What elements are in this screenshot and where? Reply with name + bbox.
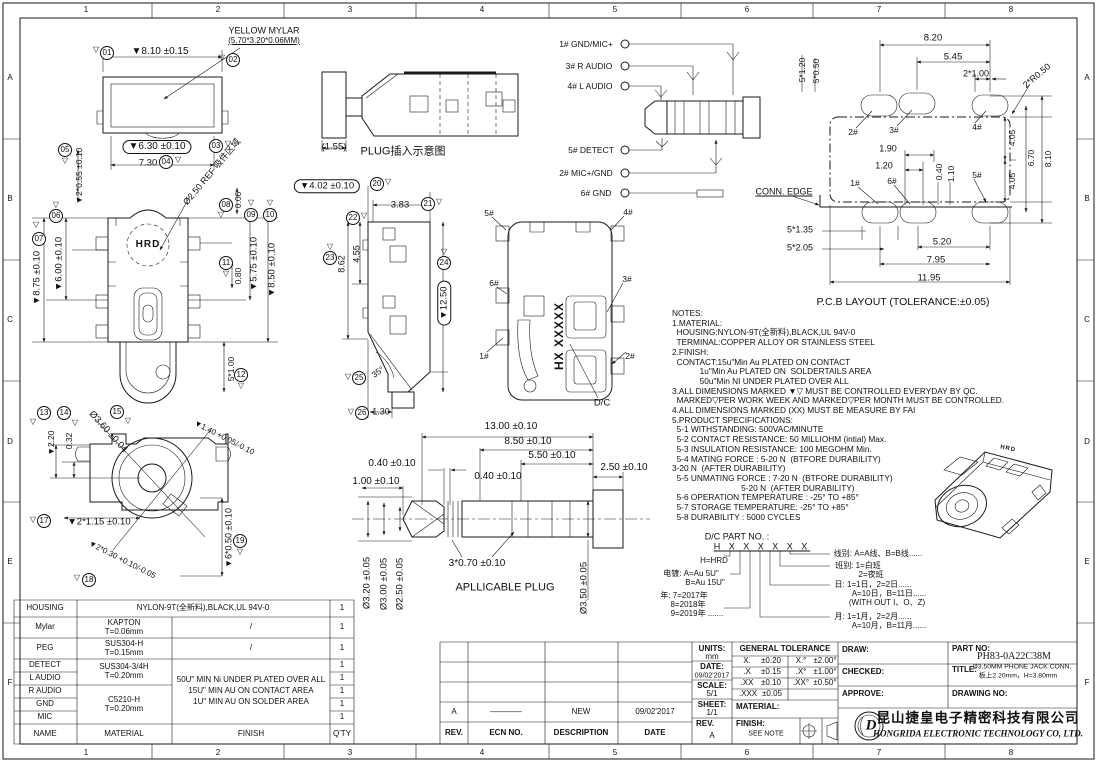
dim-label: ▼5.75 ±0.10 xyxy=(249,237,259,291)
dim-label: ▼8.50 ±0.10 xyxy=(267,243,277,297)
grid-ref: C xyxy=(7,316,13,324)
bom-header-material: MATERIAL xyxy=(104,730,143,738)
rev-entry-ecn: ———— xyxy=(490,708,522,716)
bom-header-finish: FINISH xyxy=(238,730,264,738)
part-number: PH83-0A22C38M xyxy=(977,652,1051,662)
tolerance-header: GENERAL TOLERANCE xyxy=(740,645,831,653)
bom-finish-line: 50U" MIN Ni UNDER PLATED OVER ALL xyxy=(177,676,326,684)
bom-name: Mylar xyxy=(35,623,55,631)
inspection-triangle-icon: ▽ xyxy=(218,211,224,219)
grid-ref: 5 xyxy=(613,6,617,14)
dim-label: 0.40 ±0.10 xyxy=(368,459,415,469)
pin-label: 5# DETECT xyxy=(568,146,614,155)
rev-entry-date: 09/02'2017 xyxy=(635,708,674,716)
bom-qty: 1 xyxy=(340,644,344,652)
company-name-en: HONGRIDA ELECTRONIC TECHNOLOGY CO, LTD. xyxy=(873,730,1083,739)
grid-ref: D xyxy=(1084,438,1090,446)
bom-name: PEG xyxy=(37,644,54,652)
balloon-number: 18 xyxy=(82,573,96,587)
inspection-triangle-icon: ▽ xyxy=(72,419,78,427)
tol-angular-key: X.° xyxy=(796,657,807,665)
dim-label: 8.10 xyxy=(1044,151,1053,168)
note-line: 5-8 DURABILITY : 5000 CYCLES xyxy=(672,513,1004,523)
conn-edge-label: CONN. EDGE xyxy=(755,188,812,197)
dim-label: B=Au 15U" xyxy=(685,579,725,587)
bom-material: NYLON-9T(全新料),BLACK,UL 94V-0 xyxy=(137,604,270,612)
pin-label: 4# L AUDIO xyxy=(567,82,612,91)
date-code-marking: HX XXXXX xyxy=(553,302,565,370)
grid-ref: 6 xyxy=(745,749,749,757)
grid-ref: A xyxy=(1084,74,1089,82)
grid-ref: 3 xyxy=(348,6,352,14)
view-title-applicable-plug: APLLICABLE PLUG xyxy=(455,583,554,594)
dim-label: 5*1.35 xyxy=(787,226,813,235)
dim-label: D/C xyxy=(594,398,610,408)
dc-part-no-label: D/C PART NO. : xyxy=(705,533,770,542)
dim-label: 6# xyxy=(887,177,896,186)
dim-label: 8.20 xyxy=(924,33,943,43)
dim-label: 4.05 xyxy=(1008,130,1017,147)
bom-qty: 1 xyxy=(340,713,344,721)
grid-ref: 8 xyxy=(1009,6,1013,14)
drawing-title-line2: 板上2.20mm，H=3.80mm xyxy=(979,674,1057,681)
pcb-layout-drawing xyxy=(792,40,1052,285)
dim-label: ▼2*0.55 ±0.10 xyxy=(75,148,84,205)
dim-label: 4.55 xyxy=(353,245,362,263)
balloon-number: 17 xyxy=(37,514,51,528)
bom-qty: 1 xyxy=(340,623,344,631)
dim-label: 8=2018年 xyxy=(671,601,706,609)
dim-label: 7.30 xyxy=(139,158,158,168)
bom-name: DETECT xyxy=(29,661,61,669)
dim-label: 0.32 xyxy=(65,433,74,450)
inspection-triangle-icon: ▽ xyxy=(219,54,225,62)
dim-label: 年: 7=2017年 xyxy=(660,592,707,600)
grid-ref: B xyxy=(1084,195,1089,203)
balloon-number: 01 xyxy=(100,46,114,60)
dim-label: 0.06 xyxy=(234,192,243,209)
dim-label: 2# xyxy=(848,128,857,137)
tol-angular-val: ±0.50° xyxy=(813,679,836,687)
dim-label: 5# xyxy=(484,209,493,218)
grid-ref: C xyxy=(1084,316,1090,324)
dim-label: ▼2*1.15 ±0.10 xyxy=(67,517,130,527)
balloon-number: 04 xyxy=(159,155,173,169)
inspection-triangle-icon: ▽ xyxy=(74,574,80,582)
dim-label: 电镀: A=Au 5U" xyxy=(663,570,719,578)
balloon-number: 19 xyxy=(233,534,247,548)
scale-value: 5/1 xyxy=(706,690,717,698)
balloon-number: 15 xyxy=(110,405,124,419)
dim-label: ▼8.75 ±0.10 xyxy=(32,251,42,305)
rev-entry-rev: A xyxy=(451,708,456,716)
inspection-triangle-icon: ▽ xyxy=(238,382,244,390)
bom-material-spec: T=0.06mm xyxy=(105,628,143,636)
dim-label: 6.70 xyxy=(1027,150,1036,167)
dim-label: 1.10 xyxy=(947,166,956,183)
rev-header-rev: REV. xyxy=(445,729,463,737)
dim-label: 5.50 ±0.10 xyxy=(528,451,575,461)
grid-ref: E xyxy=(1084,558,1089,566)
dim-label: 0.40 xyxy=(935,164,944,181)
material-label: MATERIAL: xyxy=(736,703,779,711)
dim-label: 2=夜班 xyxy=(858,571,883,579)
dim-label: 0.40 ±0.10 xyxy=(474,472,521,482)
date-value: 09/02'2017 xyxy=(695,673,729,680)
mylar-callout: YELLOW MYLAR xyxy=(228,27,299,36)
dim-label: 4.05 xyxy=(1008,173,1017,190)
finish-value: SEE NOTE xyxy=(748,731,783,738)
bom-material-spec: T=0.20mm xyxy=(105,705,143,713)
drawingno-label: DRAWING NO: xyxy=(952,690,1008,698)
inspection-triangle-icon: ▽ xyxy=(30,516,36,524)
bom-qty: 1 xyxy=(340,604,344,612)
pin-schematic-drawing xyxy=(621,40,760,197)
dim-label: ▼8.10 ±0.15 xyxy=(131,47,188,57)
grid-ref: 7 xyxy=(877,749,881,757)
dim-label: Ø3.50 ±0.05 xyxy=(579,562,589,614)
grid-ref: 2 xyxy=(216,6,220,14)
dim-label: 5# xyxy=(972,171,981,180)
dim-label: 3# xyxy=(622,275,631,284)
units-value: mm xyxy=(705,653,718,661)
grid-ref: B xyxy=(7,195,12,203)
bom-header-name: NAME xyxy=(33,730,56,738)
hrd-logo-text: HRD xyxy=(136,240,161,250)
dim-label: 3# xyxy=(889,126,898,135)
dim-label: 6# xyxy=(489,279,498,288)
rev-entry-description: NEW xyxy=(572,708,591,716)
balloon-number: 12 xyxy=(234,368,248,382)
pin-label: 2# MIC+/GND xyxy=(559,169,613,178)
inspection-triangle-icon: ▽ xyxy=(125,417,131,425)
rev-header-description: DESCRIPTION xyxy=(554,729,609,737)
inspection-triangle-icon: ▽ xyxy=(436,198,442,206)
grid-ref: 3 xyxy=(348,749,352,757)
dim-label: 3*0.70 ±0.10 xyxy=(449,559,506,569)
balloon-number: 26 xyxy=(355,406,369,420)
grid-ref: E xyxy=(7,558,12,566)
inspection-triangle-icon: ▽ xyxy=(93,46,99,54)
grid-ref: 7 xyxy=(877,6,881,14)
dim-label: 4# xyxy=(623,208,632,217)
grid-ref: 2 xyxy=(216,749,220,757)
dim-label: 3.83 xyxy=(391,200,410,210)
dim-label: ▼6.30 ±0.10 xyxy=(122,140,191,154)
balloon-number: 13 xyxy=(37,406,51,420)
balloon-number: 22 xyxy=(346,211,360,225)
tol-linear-val: ±0.10 xyxy=(761,679,781,687)
tol-angular-key: .XX° xyxy=(793,679,809,687)
date-label: DATE: xyxy=(700,663,724,671)
bom-name: GND xyxy=(36,700,54,708)
balloon-number: 07 xyxy=(32,232,46,246)
grid-ref: F xyxy=(8,679,13,687)
inspection-triangle-icon: ▽ xyxy=(223,270,229,278)
inspection-triangle-icon: ▽ xyxy=(237,548,243,556)
notes-block: NOTES:1.MATERIAL: HOUSING:NYLON-9T(全新料),… xyxy=(672,309,1004,522)
dim-label: 7.95 xyxy=(927,255,946,265)
dim-label: Ø2.50 ±0.05 xyxy=(395,558,405,610)
dim-label: ▼2.20 xyxy=(47,431,56,456)
pin-label: 1# GND/MIC+ xyxy=(559,40,613,49)
grid-ref: F xyxy=(1085,679,1090,687)
inspection-triangle-icon: ▽ xyxy=(62,157,68,165)
sheet-value: 1/1 xyxy=(706,709,717,717)
plug-insert-view-drawing xyxy=(322,72,518,152)
front-circular-view-drawing xyxy=(50,420,231,576)
tol-linear-key: .X xyxy=(743,668,751,676)
grid-ref: 8 xyxy=(1009,749,1013,757)
note-line: TERMINAL:COPPER ALLOY OR STAINLESS STEEL xyxy=(672,338,1004,348)
balloon-number: 14 xyxy=(57,406,71,420)
balloon-number: 11 xyxy=(219,256,233,270)
dim-label: (5.70*3.20*0.06MM) xyxy=(228,37,300,45)
tol-angular-val: ±1.00° xyxy=(813,668,836,676)
company-logo-letter: D xyxy=(866,719,877,734)
dim-label: 8.50 ±0.10 xyxy=(504,437,551,447)
rev-label: REV. xyxy=(696,720,714,728)
tol-angular-val: ±2.00° xyxy=(813,657,836,665)
grid-ref: 5 xyxy=(613,749,617,757)
view-title-plug-insert: PLUG插入示意图 xyxy=(361,147,446,158)
bom-header-qty: Q'TY xyxy=(333,730,351,738)
inspection-triangle-icon: ▽ xyxy=(385,178,391,186)
dim-label: 13.00 ±0.10 xyxy=(485,422,538,432)
bom-material: KAPTON xyxy=(108,619,141,627)
grid-ref: 1 xyxy=(84,6,88,14)
bom-qty: 1 xyxy=(340,674,344,682)
bom-material-spec: T=0.20mm xyxy=(105,672,143,680)
dim-label: 0.80 xyxy=(234,268,243,285)
grid-ref: 1 xyxy=(84,749,88,757)
bom-material: SUS304-H xyxy=(105,640,143,648)
dim-label: 5*1.20 xyxy=(798,58,807,83)
dim-label: ▼6.00 ±0.10 xyxy=(54,237,64,291)
bom-finish: / xyxy=(250,644,252,652)
bom-qty: 1 xyxy=(340,700,344,708)
dc-part-no-code: H X X X X X X xyxy=(714,543,811,552)
drawing-sheet: 1234567812345678ABCDEFABCDEFYELLOW MYLAR… xyxy=(0,0,1097,762)
checked-label: CHECKED: xyxy=(842,668,884,676)
dim-label: 5.20 xyxy=(933,237,952,247)
tol-linear-val: ±0.15 xyxy=(761,668,781,676)
pin-label: 6# GND xyxy=(581,189,612,198)
bom-table-grid xyxy=(14,600,354,744)
dim-label: (WITH OUT I、O、Z) xyxy=(849,599,925,607)
view-title-pcb: P.C.B LAYOUT (TOLERANCE:±0.05) xyxy=(816,297,989,308)
inspection-triangle-icon: ▽ xyxy=(248,199,254,207)
drawing-title-line1: Ø3.50MM PHONE JACK CONN, xyxy=(973,665,1072,672)
bom-finish: / xyxy=(250,623,252,631)
balloon-number: 20 xyxy=(370,177,384,191)
inspection-triangle-icon: ▽ xyxy=(348,408,354,416)
bom-material: SUS304-3/4H xyxy=(99,663,148,671)
balloon-number: 21 xyxy=(421,197,435,211)
balloon-number: 23 xyxy=(323,251,337,265)
inspection-triangle-icon: ▽ xyxy=(327,243,333,251)
dim-label: 2*1.00 xyxy=(963,70,989,79)
dim-label: 月: 1=1月，2=2月...... xyxy=(835,613,912,621)
inspection-triangle-icon: ▽ xyxy=(30,418,36,426)
tol-angular-key: .X° xyxy=(796,668,807,676)
finish-label: FINISH: xyxy=(736,720,765,728)
balloon-number: 10 xyxy=(263,208,277,222)
dim-label: 班别: 1=白班 xyxy=(835,562,881,570)
approve-label: APPROVE: xyxy=(842,690,884,698)
bom-finish-line: 1U" MIN AU ON SOLDER AREA xyxy=(193,698,309,706)
balloon-number: 09 xyxy=(244,208,258,222)
bom-name: MIC xyxy=(38,713,53,721)
rev-header-date: DATE xyxy=(644,729,665,737)
dim-label: (1.55) xyxy=(322,142,347,152)
bom-finish-line: 15U" MIN AU ON CONTACT AREA xyxy=(188,687,313,695)
balloon-number: 05 xyxy=(58,143,72,157)
dim-label: ▼4.02 ±0.10 xyxy=(294,179,360,193)
dim-label: 5*0.50 xyxy=(812,59,821,84)
grid-ref: A xyxy=(7,74,12,82)
tol-linear-val: ±0.05 xyxy=(762,690,782,698)
bom-name: HOUSING xyxy=(26,604,63,612)
bom-qty: 1 xyxy=(340,661,344,669)
rev-value: A xyxy=(709,732,714,740)
inspection-triangle-icon: ▽ xyxy=(361,212,367,220)
dim-label: Ø3.00 ±0.05 xyxy=(379,558,389,610)
inspection-triangle-icon: ▽ xyxy=(267,199,273,207)
dim-label: 4# xyxy=(972,123,981,132)
inspection-triangle-icon: ▽ xyxy=(175,156,181,164)
dim-label: 1.30 xyxy=(372,408,390,417)
bom-name: R AUDIO xyxy=(29,687,62,695)
balloon-number: 25 xyxy=(352,371,366,385)
dc-code-leaders xyxy=(724,551,830,617)
dim-label: Ø3.20 ±0.05 xyxy=(362,557,372,609)
tol-linear-key: X. xyxy=(743,657,751,665)
draw-label: DRAW: xyxy=(842,646,869,654)
dim-label: 线别: A=A线、B=B线...... xyxy=(834,550,922,558)
balloon-number: 02 xyxy=(226,53,240,67)
dim-label: 日: 1=1日，2=2日...... xyxy=(835,581,912,589)
bom-qty: 1 xyxy=(340,687,344,695)
bom-material-spec: T=0.15mm xyxy=(105,649,143,657)
dim-label: ▼12.50 xyxy=(437,280,451,325)
dim-label: 5.45 xyxy=(944,52,963,62)
dim-label: ▼6*0.50 ±0.10 xyxy=(225,508,234,568)
inspection-triangle-icon: ▽ xyxy=(345,373,351,381)
balloon-number: 24 xyxy=(437,256,451,270)
grid-ref: 4 xyxy=(480,6,484,14)
dim-label: 1# xyxy=(479,352,488,361)
dim-label: 1.20 xyxy=(875,162,893,171)
inspection-triangle-icon: ▽ xyxy=(441,248,447,256)
rev-header-ecn: ECN NO. xyxy=(489,729,522,737)
dim-label: A=10月，B=11月...... xyxy=(852,622,927,630)
dim-label: 5*2.05 xyxy=(787,244,813,253)
dim-label: 2.50 ±0.10 xyxy=(600,463,647,473)
dim-label: 11.95 xyxy=(917,273,940,283)
dim-label: 8.62 xyxy=(338,255,347,273)
company-name-cn: 昆山捷皇电子精密科技有限公司 xyxy=(877,711,1080,725)
inspection-triangle-icon: ▽ xyxy=(53,201,59,209)
balloon-number: 06 xyxy=(49,209,63,223)
pin-label: 3# R AUDIO xyxy=(566,62,613,71)
tol-linear-key: .XXX xyxy=(739,690,757,698)
grid-ref: 6 xyxy=(745,6,749,14)
grid-ref: D xyxy=(7,438,13,446)
tol-linear-val: ±0.20 xyxy=(761,657,781,665)
projection-symbol-icons xyxy=(801,722,837,740)
grid-ref: 4 xyxy=(480,749,484,757)
dim-label: 9=2019年 ....... xyxy=(671,610,724,618)
dim-label: 1# xyxy=(850,179,859,188)
dim-label: 2# xyxy=(625,352,634,361)
dim-label: 1.00 ±0.10 xyxy=(352,477,399,487)
bom-material: C5210-H xyxy=(108,696,140,704)
dim-label: H=HRD xyxy=(700,557,728,565)
bom-name: L AUDIO xyxy=(29,674,60,682)
dim-label: 1.90 xyxy=(879,145,897,154)
inspection-triangle-icon: ▽ xyxy=(33,221,39,229)
dim-label: A=10日，B=11日...... xyxy=(852,590,927,598)
tol-linear-key: .XX xyxy=(741,679,754,687)
